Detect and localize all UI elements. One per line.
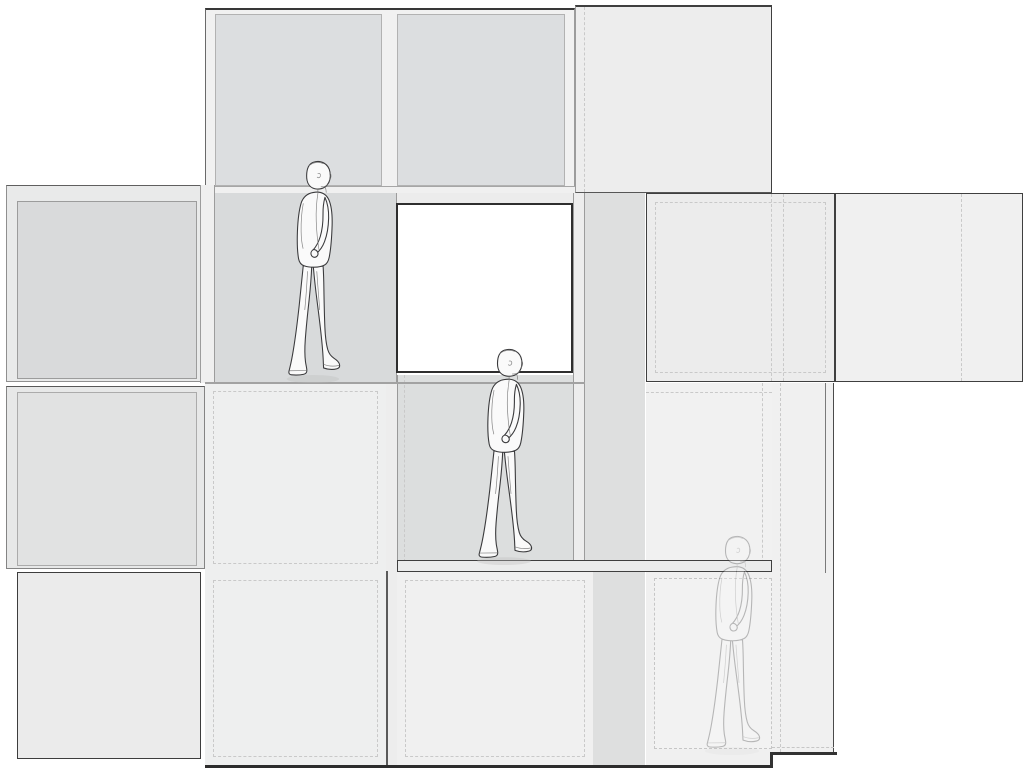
panel-bottom-module-b <box>397 572 593 765</box>
figure-walking-man-upper <box>280 159 342 384</box>
panel-right-module-b <box>835 193 1023 382</box>
panel-bottom-edge-right <box>770 752 837 755</box>
panel-strip-above-void <box>397 193 573 203</box>
panel-recessed-column <box>585 193 645 765</box>
panel-bottom-dashed-line <box>772 747 834 748</box>
panel-lower-module-a <box>205 383 386 572</box>
panel-left-module-lower <box>17 572 201 759</box>
panel-bottom-module-divider-line <box>386 571 388 765</box>
stage <box>0 0 1024 771</box>
panel-right-module-a <box>646 193 835 382</box>
panel-left-module-middle-inner <box>17 392 197 566</box>
panel-bottom-step-line <box>770 752 773 768</box>
panel-bottom-module-a <box>205 572 386 765</box>
panel-tower-top-module-right <box>397 14 565 186</box>
figure-walking-man-lower-ghost <box>698 534 762 756</box>
panel-top-right-module <box>575 5 772 193</box>
panel-left-module-upper-inner <box>17 201 197 379</box>
panel-bottom-edge-central <box>205 765 772 768</box>
figure-walking-man-middle <box>470 347 534 566</box>
panel-right-inner-edge-line <box>825 383 826 573</box>
panel-tower-left-frame-band <box>200 185 215 383</box>
